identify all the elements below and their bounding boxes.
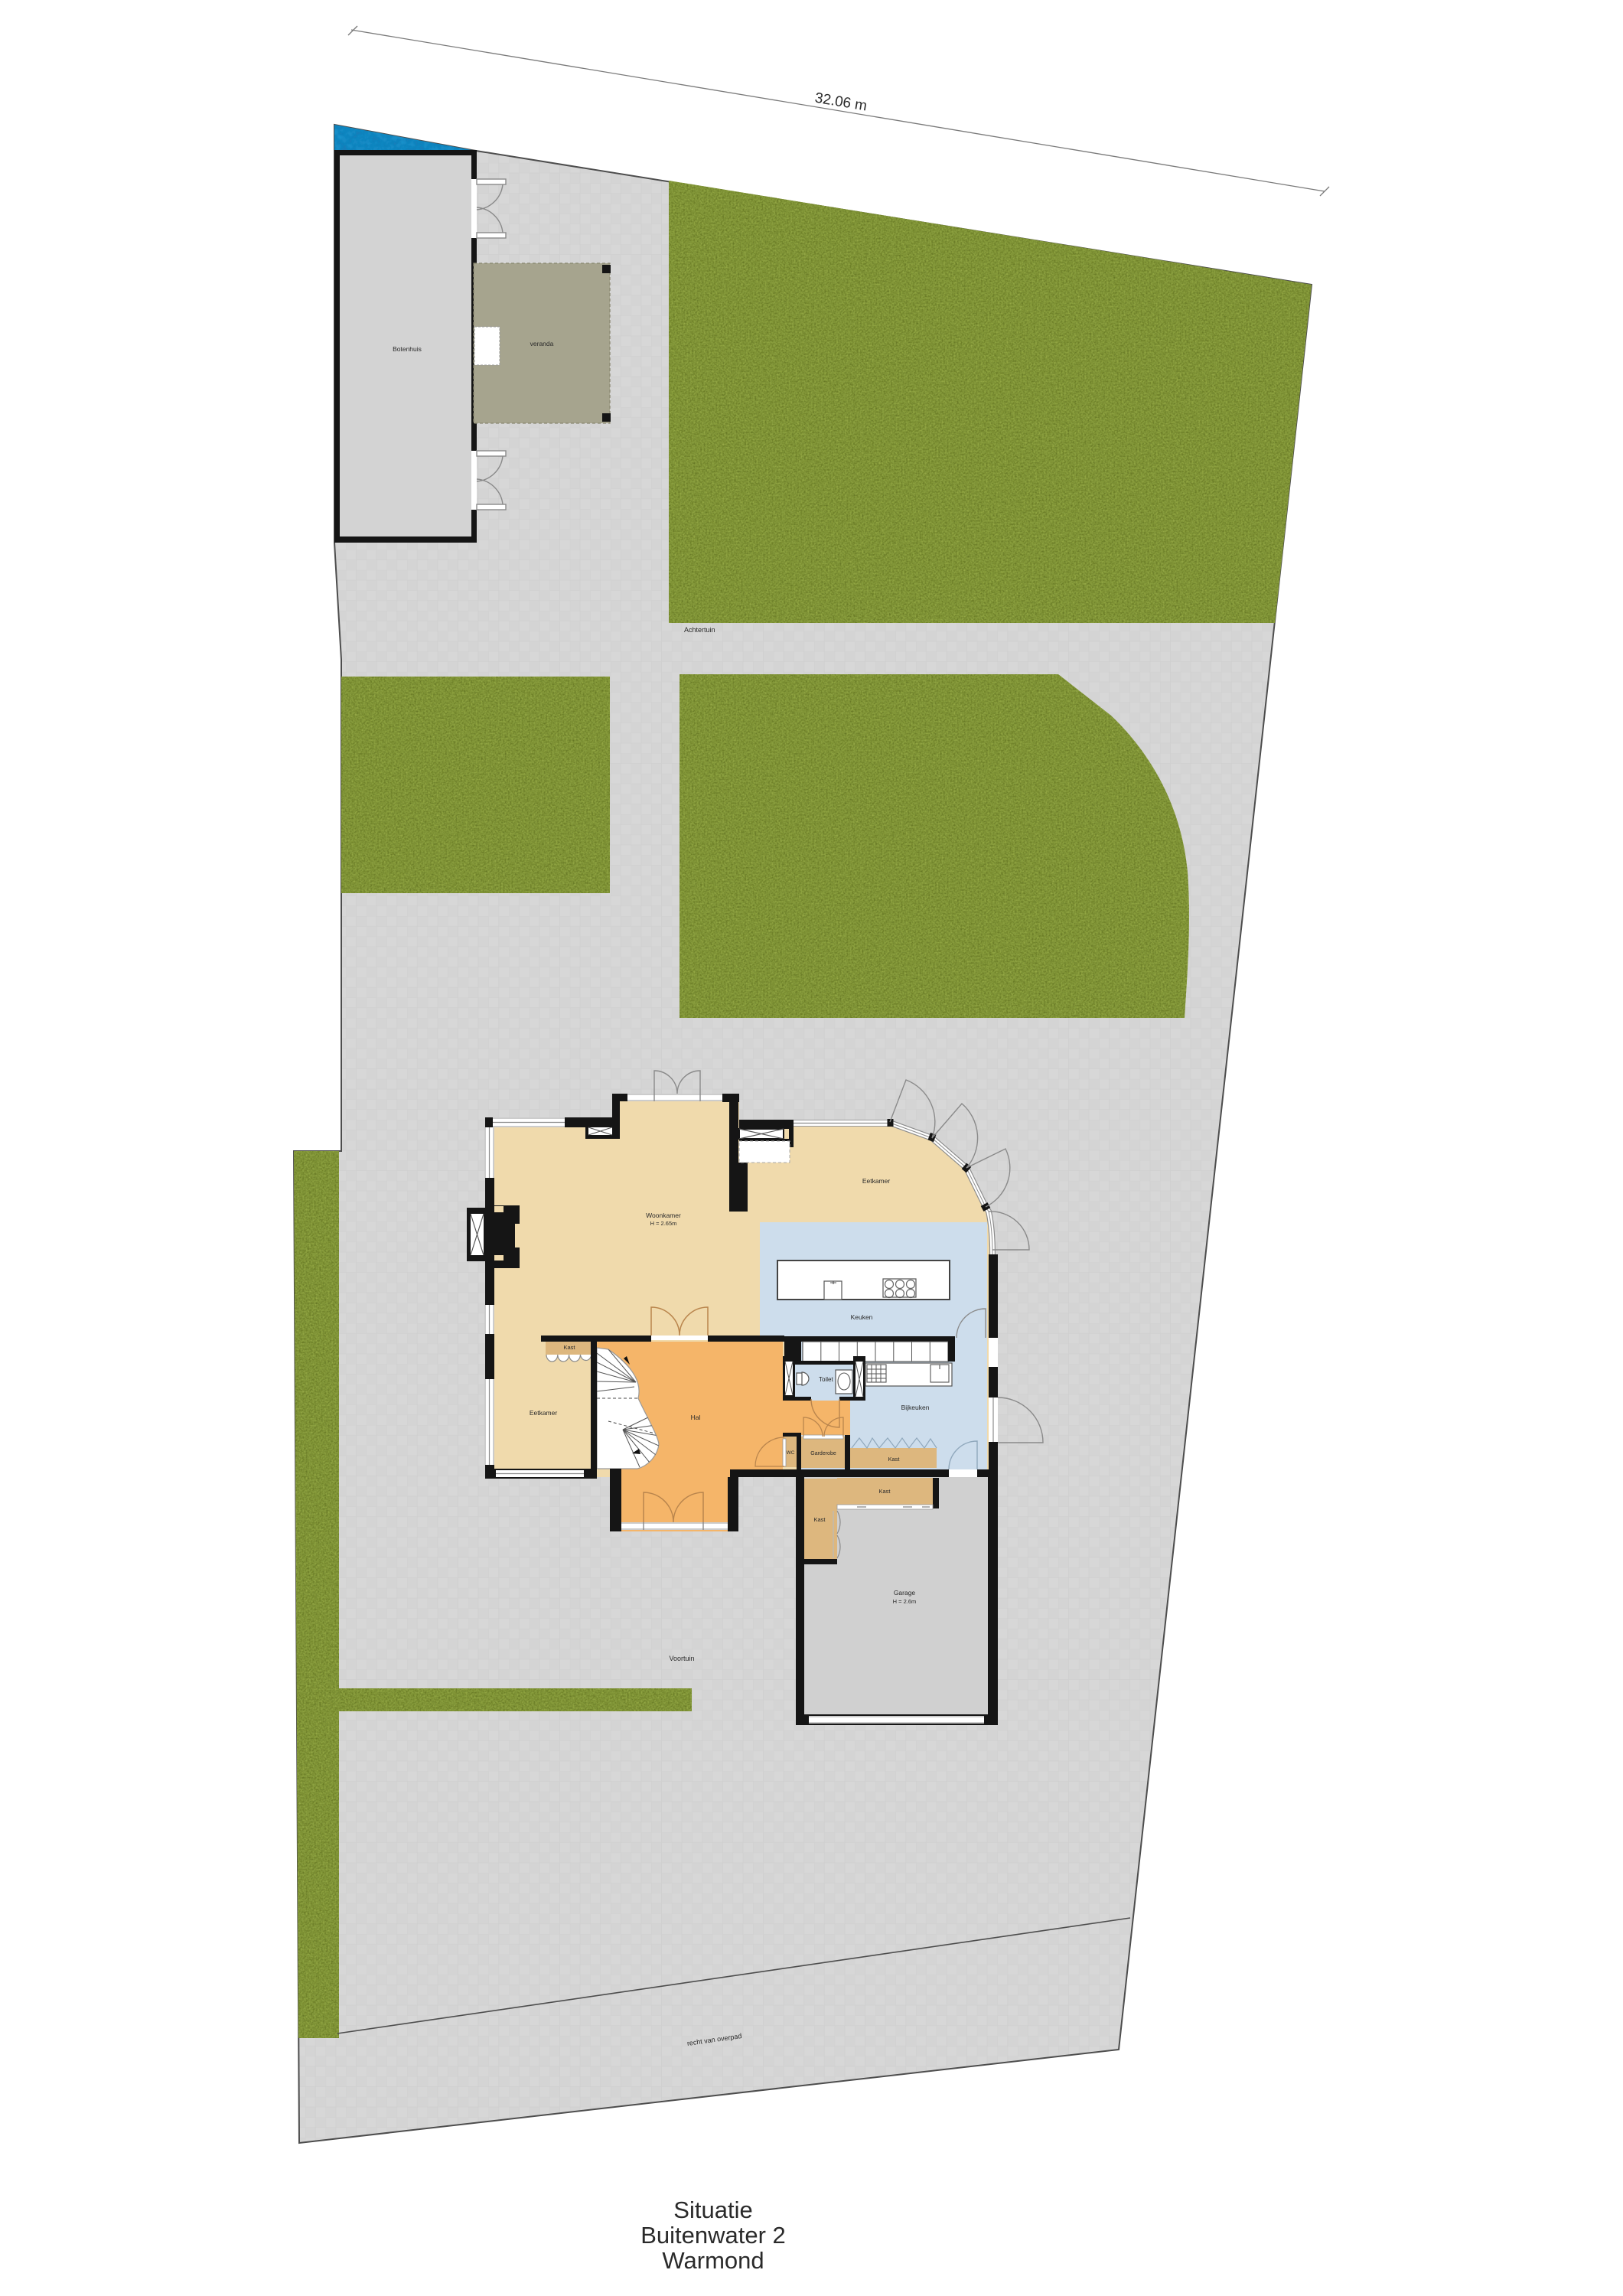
svg-text:Eetkamer: Eetkamer (530, 1409, 558, 1417)
svg-text:Achtertuin: Achtertuin (684, 626, 715, 634)
svg-text:Voortuin: Voortuin (669, 1655, 694, 1662)
svg-text:Buitenwater 2: Buitenwater 2 (640, 2222, 786, 2249)
svg-text:veranda: veranda (530, 340, 554, 347)
svg-text:Situatie: Situatie (673, 2197, 752, 2223)
svg-text:Hal: Hal (691, 1414, 701, 1421)
svg-text:Kast: Kast (813, 1516, 826, 1523)
svg-text:H = 2.65m: H = 2.65m (650, 1220, 677, 1227)
svg-text:Garderobe: Garderobe (810, 1451, 836, 1456)
svg-text:Garage: Garage (894, 1589, 916, 1596)
svg-text:WC: WC (787, 1450, 795, 1456)
svg-text:Kast: Kast (888, 1456, 900, 1463)
svg-text:Botenhuis: Botenhuis (393, 345, 422, 353)
svg-text:Bijkeuken: Bijkeuken (901, 1404, 930, 1411)
svg-text:Kast: Kast (878, 1488, 891, 1495)
svg-text:Warmond: Warmond (662, 2247, 764, 2274)
svg-text:Eetkamer: Eetkamer (862, 1177, 891, 1185)
svg-text:Kast: Kast (563, 1344, 575, 1351)
svg-text:Toilet: Toilet (819, 1376, 833, 1383)
svg-text:Keuken: Keuken (851, 1313, 873, 1321)
svg-text:Woonkamer: Woonkamer (646, 1212, 681, 1219)
svg-text:H = 2.6m: H = 2.6m (893, 1598, 917, 1605)
